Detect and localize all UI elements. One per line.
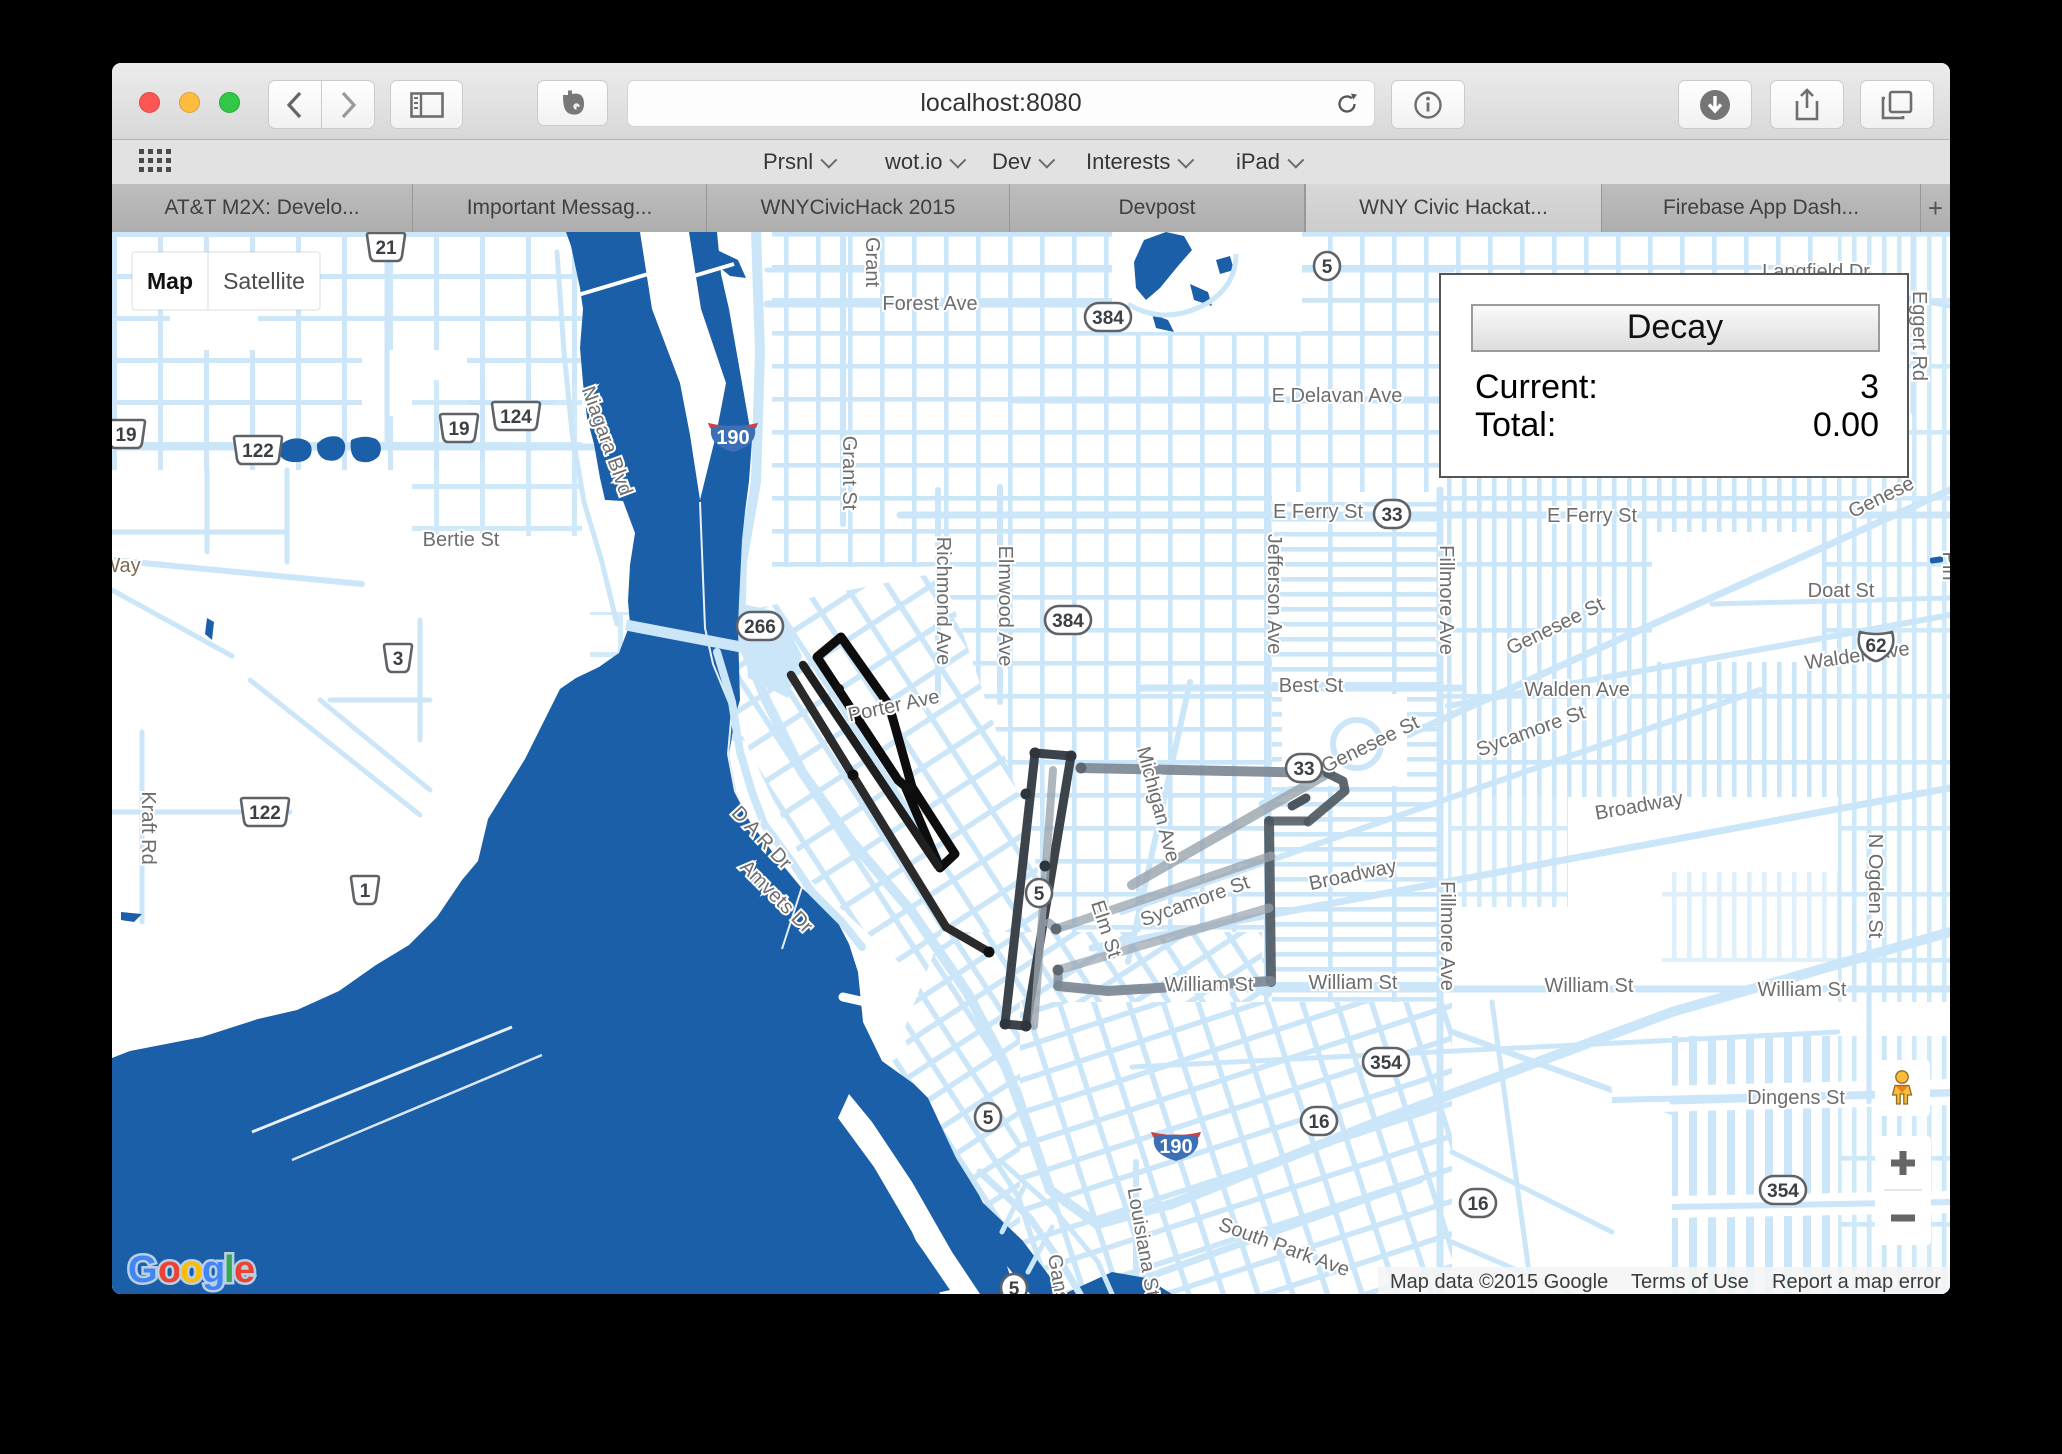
svg-text:Richmond Ave: Richmond Ave <box>932 537 954 666</box>
svg-text:354: 354 <box>1767 1181 1799 1202</box>
svg-text:Fillmore Ave: Fillmore Ave <box>1436 881 1458 991</box>
svg-text:384: 384 <box>1052 611 1084 632</box>
svg-text:Satellite: Satellite <box>223 268 305 294</box>
svg-text:William St: William St <box>1545 975 1634 997</box>
svg-text:3: 3 <box>1860 368 1879 406</box>
svg-text:62: 62 <box>1865 636 1886 657</box>
svg-text:5: 5 <box>1034 884 1045 905</box>
svg-text:5: 5 <box>1009 1279 1020 1294</box>
svg-text:Walden Ave: Walden Ave <box>1524 679 1630 701</box>
svg-text:190: 190 <box>716 427 749 449</box>
svg-text:33: 33 <box>1381 505 1402 526</box>
svg-text:19: 19 <box>115 425 136 446</box>
svg-text:384: 384 <box>1092 308 1124 329</box>
svg-text:William St: William St <box>1165 974 1254 996</box>
svg-text:Elmwood Ave: Elmwood Ave <box>994 546 1016 667</box>
svg-text:William St: William St <box>1758 979 1847 1001</box>
svg-text:Eggert Rd: Eggert Rd <box>1908 291 1930 381</box>
svg-text:Forest Ave: Forest Ave <box>882 293 977 315</box>
svg-text:Dingens St: Dingens St <box>1747 1087 1845 1109</box>
svg-text:Fillmore Ave: Fillmore Ave <box>1435 545 1457 655</box>
svg-text:Jefferson Ave: Jefferson Ave <box>1263 534 1285 654</box>
svg-text:Bertie St: Bertie St <box>423 529 500 551</box>
svg-text:122: 122 <box>249 803 281 824</box>
svg-text:190: 190 <box>1159 1136 1192 1158</box>
svg-text:1: 1 <box>360 881 371 902</box>
svg-text:Grant St: Grant St <box>838 436 860 511</box>
svg-text:Map data ©2015 Google: Map data ©2015 Google <box>1390 1271 1608 1293</box>
svg-text:Decay: Decay <box>1627 308 1723 346</box>
svg-text:5: 5 <box>983 1108 994 1129</box>
svg-text:Map: Map <box>147 268 193 294</box>
svg-text:Best St: Best St <box>1279 675 1344 697</box>
svg-text:3: 3 <box>393 649 404 670</box>
svg-text:e: e <box>234 1249 255 1291</box>
svg-text:William St: William St <box>1309 972 1398 994</box>
svg-text:33: 33 <box>1293 759 1314 780</box>
svg-text:E Ferry St: E Ferry St <box>1547 505 1637 527</box>
svg-text:Grant: Grant <box>861 237 883 287</box>
svg-text:354: 354 <box>1370 1053 1402 1074</box>
svg-text:G: G <box>128 1249 158 1291</box>
svg-text:E Delavan Ave: E Delavan Ave <box>1272 385 1403 407</box>
svg-text:Total:: Total: <box>1475 406 1556 444</box>
svg-text:l: l <box>224 1249 235 1291</box>
svg-text:Current:: Current: <box>1475 368 1598 406</box>
svg-text:16: 16 <box>1308 1112 1329 1133</box>
svg-text:Doat St: Doat St <box>1808 580 1875 602</box>
svg-text:Way: Way <box>112 555 141 577</box>
svg-text:19: 19 <box>448 419 469 440</box>
svg-text:122: 122 <box>242 441 274 462</box>
svg-text:5: 5 <box>1322 257 1333 278</box>
svg-text:Kraft Rd: Kraft Rd <box>137 791 159 864</box>
svg-text:124: 124 <box>500 407 532 428</box>
svg-text:o: o <box>180 1249 203 1291</box>
svg-text:N Ogden St: N Ogden St <box>1864 834 1886 939</box>
svg-text:g: g <box>202 1249 225 1291</box>
svg-text:Terms of Use: Terms of Use <box>1631 1271 1749 1293</box>
svg-text:E Ferry St: E Ferry St <box>1273 501 1363 523</box>
svg-text:o: o <box>158 1249 181 1291</box>
svg-text:Report a map error: Report a map error <box>1772 1271 1941 1293</box>
svg-text:0.00: 0.00 <box>1813 406 1879 444</box>
svg-text:266: 266 <box>744 617 776 638</box>
svg-text:16: 16 <box>1467 1194 1488 1215</box>
svg-text:21: 21 <box>375 238 397 259</box>
svg-text:Pin: Pin <box>1938 552 1950 581</box>
